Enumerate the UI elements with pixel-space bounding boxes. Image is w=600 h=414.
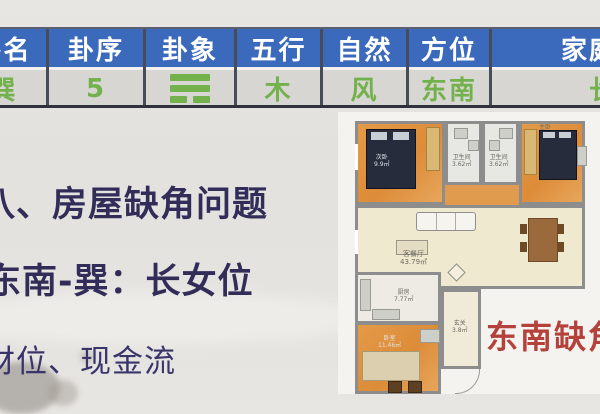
sink-icon — [489, 140, 500, 151]
table-column-wuxing: 五行 木 — [237, 29, 323, 107]
door-swing-icon — [455, 369, 480, 394]
trigram-attribute-table: 卦名 巽 卦序 5 卦象 五行 木 自然 风 方位 东南 家庭成员 — [0, 27, 600, 107]
room-label: 卫生间 3.62㎡ — [452, 154, 471, 168]
window-icon — [355, 230, 358, 254]
table-column-guaming: 卦名 巽 — [0, 29, 49, 107]
toilet-icon — [499, 128, 513, 139]
value-cell-family: 长女 — [492, 70, 600, 107]
subtitle-southeast-xun: 东南-巽：长女位 — [0, 253, 254, 304]
xun-trigram-icon — [170, 74, 210, 103]
value-cell-wuxing: 木 — [237, 70, 320, 107]
room-bedroom-bottom: 卧室 11.46㎡ — [355, 322, 441, 394]
desk-icon — [577, 146, 587, 166]
dining-table-icon — [528, 218, 558, 262]
value-cell-guaming: 巽 — [0, 70, 46, 107]
header-cell-guaxiang: 卦象 — [146, 29, 234, 70]
sofa-icon — [416, 212, 476, 231]
table-bottom-rule — [0, 105, 600, 108]
sink-icon — [468, 140, 479, 151]
room-bathroom-right: 卫生间 3.62㎡ — [482, 121, 519, 185]
room-label: 次卧 9.9㎡ — [374, 154, 390, 168]
value-cell-fangwei: 东南 — [409, 70, 489, 107]
table-column-guaxiang: 卦象 — [146, 29, 237, 107]
window-icon — [355, 144, 358, 170]
southeast-missing-corner-label: 东南缺角 — [486, 312, 600, 358]
room-bedroom-top-right: 主卧 — [519, 121, 585, 205]
room-label: 厨房 7.77㎡ — [394, 289, 413, 303]
room-entry: 玄关 3.8㎡ — [441, 289, 481, 369]
counter-icon — [360, 279, 371, 311]
room-label: 卫生间 3.62㎡ — [489, 154, 508, 168]
room-label: 卧室 11.46㎡ — [378, 335, 401, 349]
header-cell-ziran: 自然 — [323, 29, 406, 70]
section-title-missing-corner: 八、房屋缺角问题 — [0, 176, 268, 227]
watermark-photo-blob — [48, 380, 78, 406]
slide-canvas: { "table": { "columns": [ { "header": "卦… — [0, 0, 600, 400]
trigram-solid-line — [170, 85, 210, 92]
value-cell-guaxu: 5 — [49, 70, 143, 107]
wardrobe-icon — [420, 329, 440, 343]
room-bedroom-top-left: 次卧 9.9㎡ — [355, 121, 445, 205]
table-column-fangwei: 方位 东南 — [409, 29, 492, 107]
bed-icon — [539, 130, 577, 180]
wardrobe-icon — [426, 127, 440, 171]
room-bathroom-left: 卫生间 3.62㎡ — [445, 121, 482, 185]
value-cell-ziran: 风 — [323, 70, 406, 107]
header-cell-guaming: 卦名 — [0, 29, 46, 70]
trigram-broken-line — [170, 96, 210, 103]
value-cell-guaxiang — [146, 70, 234, 107]
header-cell-wuxing: 五行 — [237, 29, 320, 70]
dresser-icon — [408, 381, 422, 393]
header-cell-guaxu: 卦序 — [49, 29, 143, 70]
room-label: 玄关 3.8㎡ — [452, 320, 468, 334]
room-label: 客餐厅 43.79㎡ — [400, 250, 427, 266]
wardrobe-icon — [524, 129, 537, 175]
table-column-family: 家庭成员 长女 — [492, 29, 600, 107]
dresser-icon — [388, 381, 402, 393]
room-kitchen: 厨房 7.77㎡ — [355, 272, 441, 324]
stove-icon — [372, 309, 400, 320]
header-cell-fangwei: 方位 — [409, 29, 489, 70]
trigram-solid-line — [170, 74, 210, 81]
bed-icon — [362, 351, 420, 381]
table-column-guaxu: 卦序 5 — [49, 29, 146, 107]
table-column-ziran: 自然 风 — [323, 29, 409, 107]
header-cell-family: 家庭成员 — [492, 29, 600, 70]
room-label: 主卧 — [539, 124, 551, 131]
decor-diamond-icon — [447, 263, 465, 281]
caption-wealth-cashflow: 财位、现金流 — [0, 336, 176, 381]
toilet-icon — [454, 128, 468, 139]
